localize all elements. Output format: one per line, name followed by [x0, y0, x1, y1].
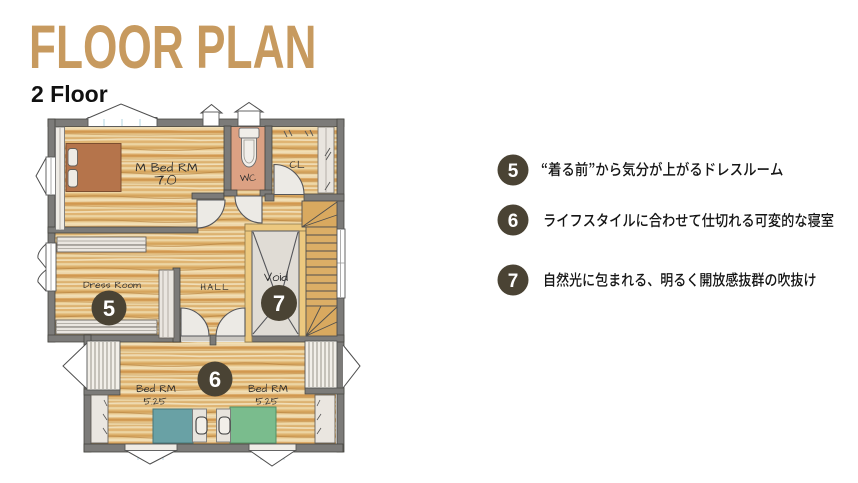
svg-text:5: 5 — [103, 296, 115, 321]
svg-text:6: 6 — [508, 211, 519, 232]
svg-text:7: 7 — [508, 271, 519, 292]
svg-text:5: 5 — [508, 161, 519, 182]
svg-text:7: 7 — [273, 291, 285, 316]
svg-text:6: 6 — [209, 367, 221, 392]
